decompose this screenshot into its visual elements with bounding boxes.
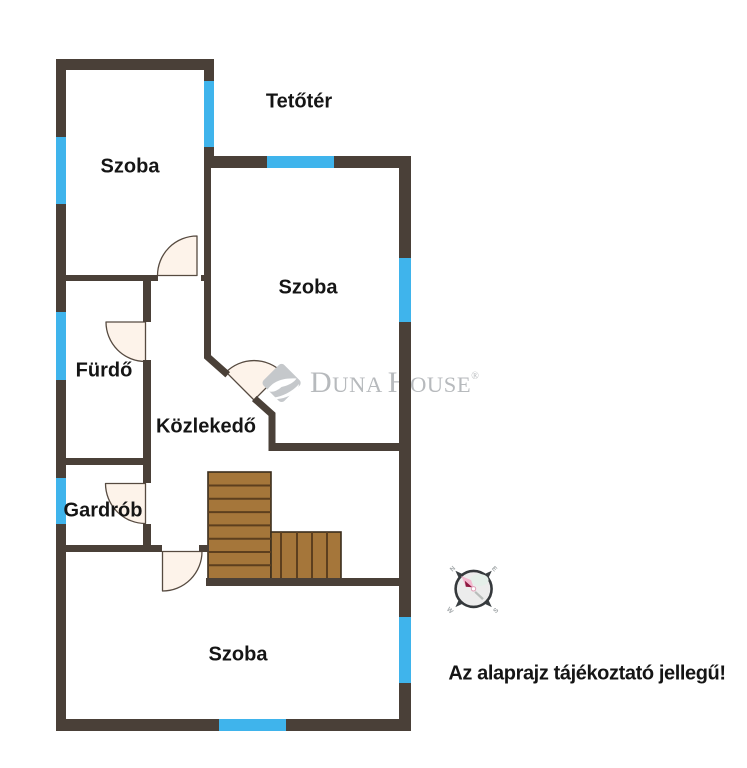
svg-text:W: W [445, 606, 455, 616]
svg-text:E: E [490, 565, 498, 573]
svg-text:S: S [492, 606, 500, 614]
